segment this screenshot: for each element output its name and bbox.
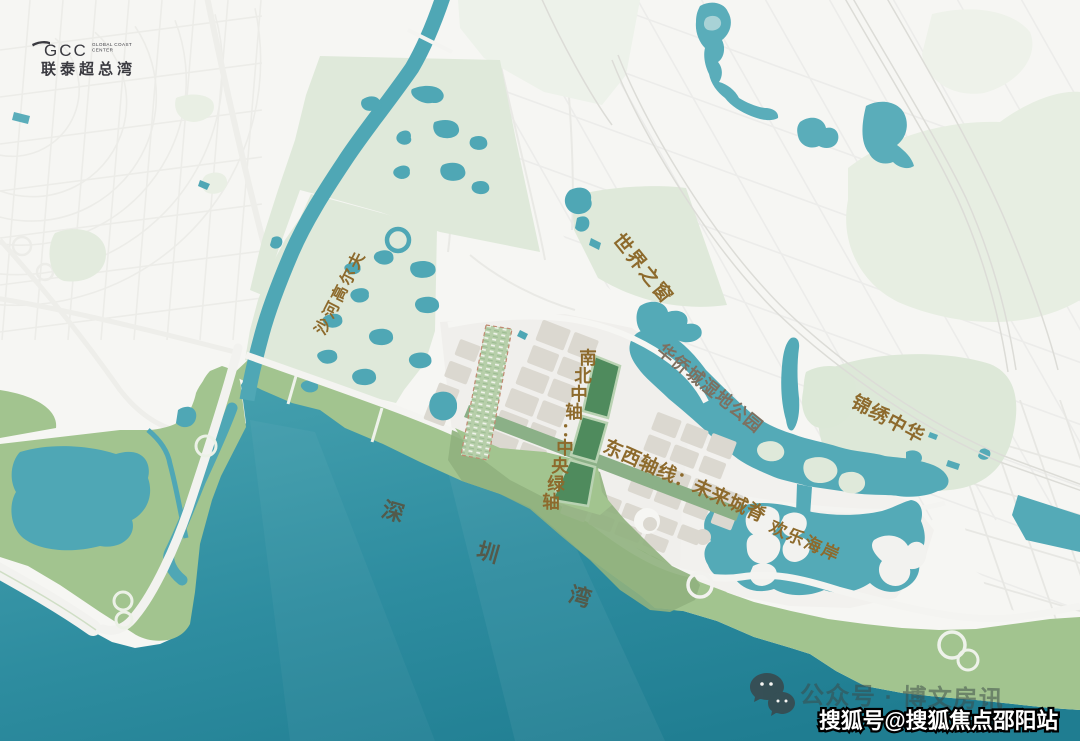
svg-text:绿: 绿 — [547, 474, 565, 494]
svg-text:央: 央 — [551, 456, 569, 476]
svg-text:南: 南 — [579, 348, 597, 368]
svg-text:：: ： — [561, 420, 579, 440]
svg-text:搜狐号@搜狐焦点邵阳站: 搜狐号@搜狐焦点邵阳站 — [819, 708, 1058, 733]
svg-text:GCC: GCC — [44, 41, 88, 60]
svg-text:联泰超总湾: 联泰超总湾 — [41, 60, 136, 78]
svg-text:中: 中 — [570, 384, 588, 404]
svg-text:轴: 轴 — [565, 402, 583, 422]
svg-text:中: 中 — [556, 438, 574, 458]
svg-text:北: 北 — [574, 366, 592, 386]
svg-text:GLOBAL COAST: GLOBAL COAST — [92, 42, 132, 47]
svg-text:CENTER: CENTER — [92, 48, 114, 53]
svg-text:轴: 轴 — [542, 492, 560, 512]
